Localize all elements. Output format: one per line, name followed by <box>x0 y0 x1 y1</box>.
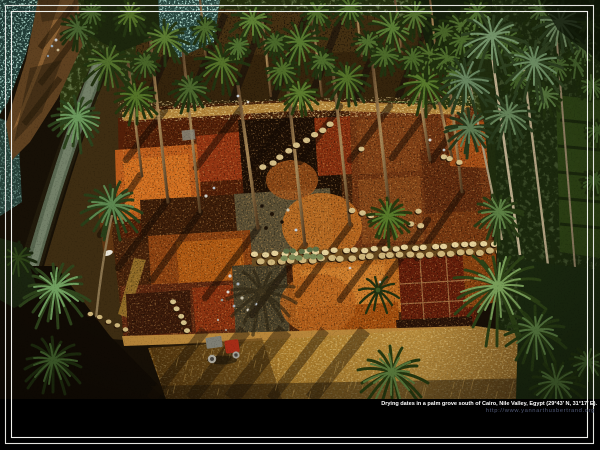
svg-text:http://www.yannarthusbertrand.: http://www.yannarthusbertrand.org <box>486 408 595 414</box>
svg-text:Drying dates in a palm grove s: Drying dates in a palm grove south of Ca… <box>381 401 597 407</box>
